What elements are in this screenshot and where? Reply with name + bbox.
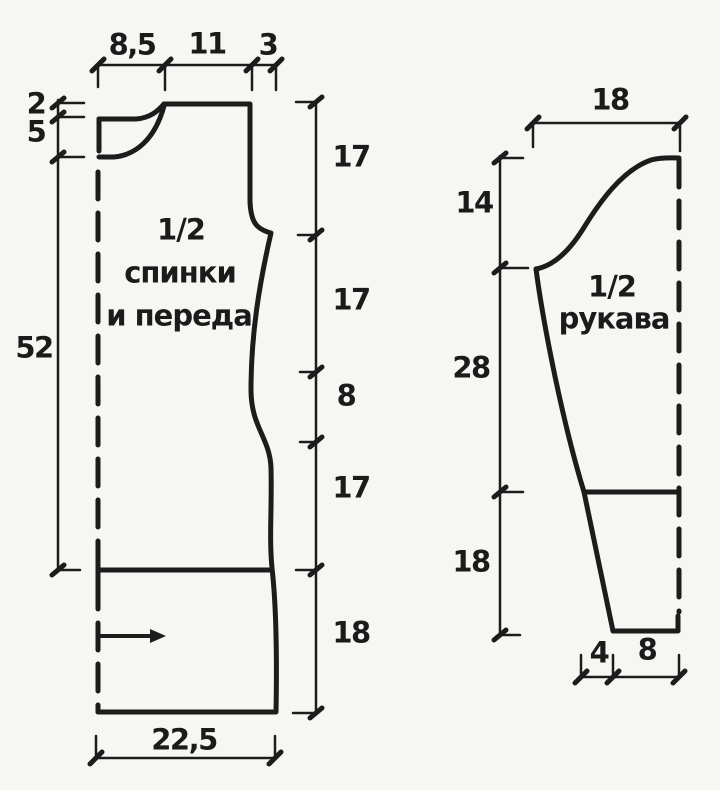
sleeve-dim-top-1: 18	[591, 86, 628, 115]
body-left-dim-extensions	[58, 103, 84, 570]
body-dim-right-5: 18	[332, 619, 369, 648]
body-dim-right-2: 17	[332, 286, 369, 315]
sleeve-title-line-2: рукава	[559, 305, 670, 334]
sleeve-left-dim-extensions	[500, 158, 528, 635]
sleeve-dim-left-2: 28	[452, 354, 489, 383]
body-dim-left-2: 5	[27, 118, 46, 147]
body-dim-top-2: 11	[188, 30, 225, 59]
body-title-line-2: спинки	[124, 259, 236, 288]
body-right-dim-extensions	[293, 102, 316, 713]
pattern-diagram-page: 1/2 спинки и переда 8,5 11 3 2 5 52 17 1…	[0, 0, 720, 790]
sleeve-dim-bottom-1: 4	[590, 639, 609, 668]
body-title-line-1: 1/2	[157, 216, 205, 245]
body-back-neck-curve	[99, 104, 164, 119]
body-dim-top-3: 3	[259, 31, 278, 60]
body-dim-right-4: 17	[332, 474, 369, 503]
sleeve-top-dim-extensions	[533, 123, 680, 151]
sleeve-dim-bottom-2: 8	[638, 636, 657, 665]
body-shoulder-and-side-outline	[98, 104, 276, 712]
body-dim-left-3: 52	[15, 334, 52, 363]
sleeve-dim-left-3: 18	[452, 548, 489, 577]
body-title-line-3: и переда	[106, 302, 252, 331]
body-dim-top-1: 8,5	[109, 31, 156, 60]
sleeve-bottom-edge	[613, 616, 678, 631]
sleeve-cap-curve	[536, 158, 679, 269]
sleeve-dim-left-1: 14	[455, 189, 492, 218]
pattern-linework	[0, 0, 720, 790]
body-dim-right-3: 8	[337, 382, 356, 411]
body-dim-bottom-1: 22,5	[151, 726, 217, 755]
grain-arrow-head	[150, 629, 166, 643]
body-dim-right-1: 17	[332, 143, 369, 172]
sleeve-title-line-1: 1/2	[588, 273, 636, 302]
